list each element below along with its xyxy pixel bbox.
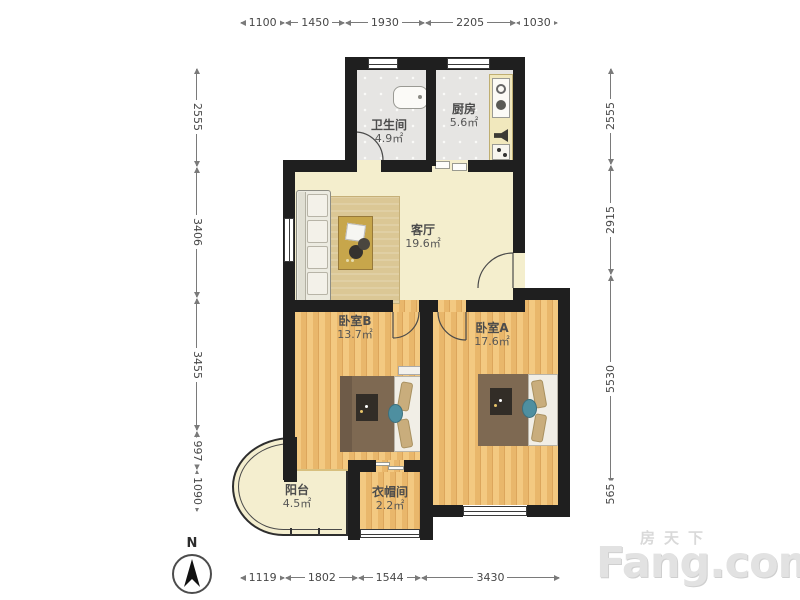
- wall-segment: [283, 300, 393, 312]
- arrowhead-icon: [345, 20, 351, 26]
- dimension-bottom-2: 1544: [358, 571, 421, 584]
- wall-segment: [419, 300, 438, 312]
- north-label: N: [172, 536, 212, 551]
- arrowhead-icon: [421, 575, 427, 581]
- wall-segment: [348, 460, 376, 472]
- dimension-left-1: 3406: [190, 167, 203, 298]
- arrowhead-icon: [358, 575, 364, 581]
- room-area: 5.6㎡: [427, 117, 501, 130]
- arrowhead-icon: [285, 575, 291, 581]
- sofa-back: [298, 192, 306, 300]
- dimension-value: 1030: [520, 17, 554, 29]
- dimension-top-3: 2205: [425, 16, 516, 29]
- dimension-value: 3455: [191, 348, 203, 382]
- room-name: 厨房: [427, 103, 501, 117]
- dimension-value: 3430: [473, 572, 507, 584]
- room-area: 19.6㎡: [388, 238, 458, 251]
- burner: [503, 153, 507, 157]
- sink-bowl: [496, 84, 506, 94]
- door-opening: [438, 300, 466, 312]
- window-glazing-line: [361, 534, 419, 535]
- sofa-cushion: [307, 272, 328, 295]
- arrowhead-icon: [194, 68, 200, 74]
- room-name: 客厅: [388, 224, 458, 238]
- door-opening: [353, 160, 381, 172]
- bed-bedroomB: [340, 376, 427, 452]
- window-mullion: [290, 528, 292, 536]
- window-glazing-line: [448, 64, 489, 65]
- dimension-right-3: 565: [604, 484, 617, 505]
- dimension-left-4: 1090: [190, 470, 203, 512]
- dimension-value: 2555: [191, 100, 203, 134]
- bed-headboard: [340, 376, 352, 452]
- room-label-bathroom: 卫生间 4.9㎡: [352, 119, 426, 145]
- dimension-value: 565: [605, 481, 617, 508]
- throw-blanket: [522, 399, 537, 418]
- dimension-value: 5530: [605, 362, 617, 396]
- bed-runner-dot: [494, 404, 497, 407]
- cup: [346, 259, 349, 262]
- arrowhead-icon: [194, 298, 200, 304]
- kitchen-door-leaf: [435, 161, 450, 169]
- wall-segment: [558, 288, 570, 517]
- dimension-value: 2205: [453, 17, 487, 29]
- bowl: [358, 238, 370, 250]
- arrowhead-icon: [554, 575, 560, 581]
- dimension-bottom-0: 1119: [240, 571, 285, 584]
- cup: [351, 259, 354, 262]
- floorplan: 卫生间 4.9㎡ 厨房 5.6㎡ 客厅 19.6㎡ 卧室B 13.7㎡ 卧室A …: [0, 0, 800, 600]
- dimension-right-2: 5530: [604, 275, 617, 484]
- dimension-top-1: 1450: [285, 16, 345, 29]
- wall-segment: [345, 57, 357, 172]
- sofa: [296, 190, 331, 302]
- arrowhead-icon: [194, 167, 200, 173]
- dimension-value: 1450: [298, 17, 332, 29]
- washbasin: [393, 86, 428, 109]
- room-label-bedroomB: 卧室B 13.7㎡: [320, 315, 390, 341]
- room-name: 卧室B: [320, 315, 390, 329]
- range-hood-icon: [494, 129, 508, 142]
- bed-runner-dot: [499, 399, 502, 402]
- room-name: 卧室A: [457, 322, 527, 336]
- dimension-value: 1544: [373, 572, 407, 584]
- room-area: 4.5㎡: [263, 498, 331, 511]
- cloakroom-sliding-door: [388, 466, 404, 470]
- room-label-cloakroom: 衣帽间 2.2㎡: [358, 486, 422, 512]
- room-label-balcony: 阳台 4.5㎡: [263, 484, 331, 510]
- window: [360, 529, 420, 538]
- dimension-value: 1100: [246, 17, 280, 29]
- wall-segment: [283, 160, 295, 480]
- dimension-value: 997: [191, 437, 203, 464]
- door-arc-entry: [478, 253, 513, 288]
- room-label-kitchen: 厨房 5.6㎡: [427, 103, 501, 129]
- dimension-bottom-3: 3430: [421, 571, 560, 584]
- window-glazing-line: [464, 511, 526, 512]
- dimension-top-2: 1930: [345, 16, 425, 29]
- dimension-value: 2915: [605, 203, 617, 237]
- dimension-value: 1930: [368, 17, 402, 29]
- bed-runner-dot: [360, 410, 363, 413]
- dimension-top-4: 1030: [516, 16, 558, 29]
- dimension-value: 3406: [191, 215, 203, 249]
- dimension-left-2: 3455: [190, 298, 203, 431]
- wall-segment: [381, 160, 432, 172]
- dimension-value: 2555: [605, 99, 617, 133]
- bed-bedroomA: [478, 372, 558, 446]
- wall-segment: [527, 505, 570, 517]
- wall-segment: [466, 300, 525, 312]
- wall-segment: [513, 57, 525, 253]
- wall-segment: [426, 70, 436, 166]
- room-name: 衣帽间: [358, 486, 422, 500]
- wall-segment: [284, 437, 297, 482]
- balcony-threshold: [297, 469, 348, 471]
- room-name: 卫生间: [352, 119, 426, 133]
- door-opening: [513, 253, 525, 288]
- room-area: 4.9㎡: [352, 133, 426, 146]
- dimension-value: 1802: [305, 572, 339, 584]
- window-glazing-line: [369, 64, 397, 65]
- arrowhead-icon: [285, 20, 291, 26]
- burner: [497, 148, 501, 152]
- room-name: 阳台: [263, 484, 331, 498]
- arrowhead-icon: [608, 275, 614, 281]
- room-area: 2.2㎡: [358, 500, 422, 513]
- window-glazing-line: [289, 219, 290, 261]
- stove: [492, 144, 510, 160]
- drain: [418, 95, 422, 99]
- wall-segment: [420, 505, 463, 517]
- sofa-cushion: [307, 220, 328, 243]
- dimension-bottom-1: 1802: [285, 571, 358, 584]
- wall-segment: [404, 460, 420, 472]
- window: [463, 506, 527, 516]
- wall-segment: [468, 160, 525, 172]
- wall-segment: [348, 460, 360, 540]
- window: [368, 58, 398, 69]
- watermark-brand-en: Fang.com: [596, 538, 800, 588]
- dimension-right-0: 2555: [604, 68, 617, 165]
- arrowhead-icon: [425, 20, 431, 26]
- arrowhead-icon: [608, 165, 614, 171]
- sofa-cushion: [307, 246, 328, 269]
- north-arrow-icon: [172, 554, 212, 594]
- dimension-left-3: 997: [190, 431, 203, 469]
- kitchen-door-leaf: [452, 163, 467, 171]
- dimension-value: 1119: [246, 572, 280, 584]
- dimension-left-0: 2555: [190, 68, 203, 167]
- door-arc-bedroomB: [393, 312, 419, 338]
- dimension-value: 1090: [191, 474, 203, 508]
- room-area: 13.7㎡: [320, 329, 390, 342]
- room-label-bedroomA: 卧室A 17.6㎡: [457, 322, 527, 348]
- window: [447, 58, 490, 69]
- room-area: 17.6㎡: [457, 336, 527, 349]
- window-mullion: [318, 528, 320, 536]
- coffee-table: [338, 216, 373, 270]
- dimension-top-0: 1100: [240, 16, 285, 29]
- window: [284, 218, 294, 262]
- dimension-right-1: 2915: [604, 165, 617, 275]
- room-label-living: 客厅 19.6㎡: [388, 224, 458, 250]
- throw-blanket: [388, 404, 403, 423]
- sofa-cushion: [307, 194, 328, 217]
- arrowhead-icon: [608, 68, 614, 74]
- bed-runner-dot: [365, 405, 368, 408]
